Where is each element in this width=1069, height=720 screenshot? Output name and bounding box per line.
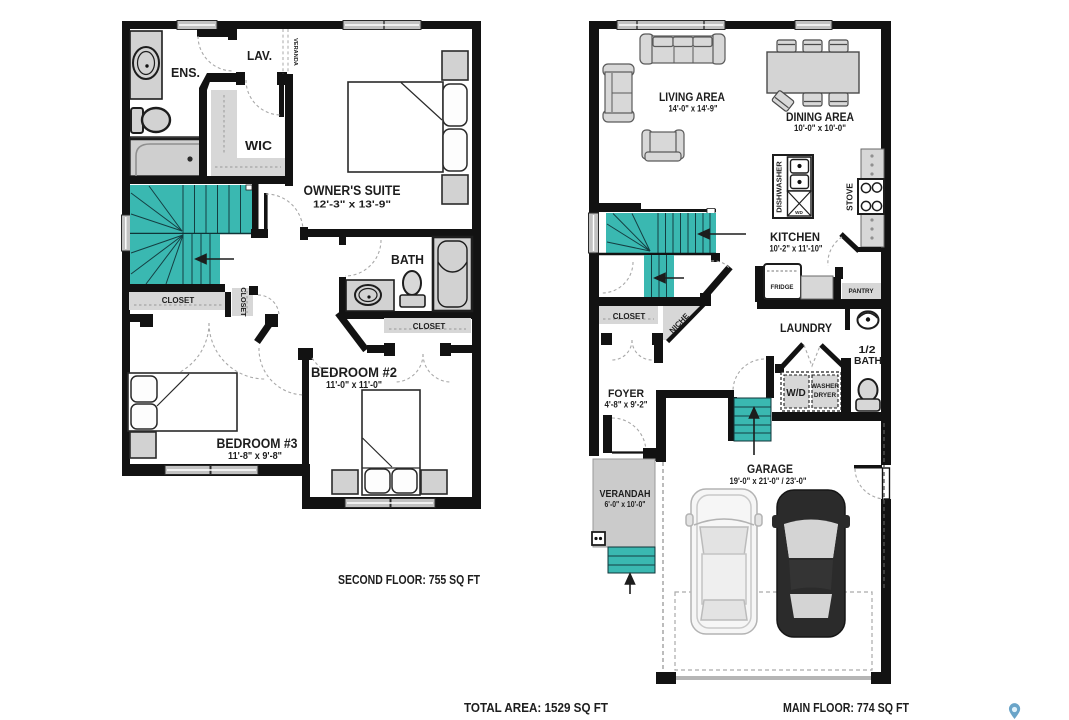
svg-text:W/D: W/D [786, 388, 805, 399]
svg-text:OWNER'S SUITE: OWNER'S SUITE [304, 183, 401, 198]
svg-text:GARAGE: GARAGE [747, 462, 793, 476]
svg-text:CLOSET: CLOSET [613, 312, 646, 321]
svg-text:DISHWASHER: DISHWASHER [775, 161, 784, 213]
svg-text:12'-3" x 13'-9": 12'-3" x 13'-9" [313, 200, 391, 211]
svg-text:BATH: BATH [854, 356, 882, 367]
svg-text:BEDROOM #2: BEDROOM #2 [311, 365, 397, 380]
svg-text:DRYER: DRYER [814, 392, 837, 399]
svg-text:11'-8" x 9'-8": 11'-8" x 9'-8" [228, 451, 282, 462]
svg-text:6'-0" x 10'-0": 6'-0" x 10'-0" [605, 500, 646, 509]
svg-text:CLOSET: CLOSET [162, 296, 195, 305]
svg-text:4'-8" x 9'-2": 4'-8" x 9'-2" [605, 400, 648, 410]
svg-text:ENS.: ENS. [171, 65, 200, 80]
svg-text:BATH: BATH [391, 253, 424, 267]
svg-text:19'-0" x 21'-0" / 23'-0": 19'-0" x 21'-0" / 23'-0" [730, 476, 807, 487]
svg-text:CLOSET: CLOSET [239, 287, 248, 317]
svg-text:10'-2" x 11'-10": 10'-2" x 11'-10" [770, 244, 823, 255]
svg-text:VERANDAH: VERANDAH [600, 489, 651, 500]
svg-text:VERANDA: VERANDA [292, 38, 298, 66]
svg-text:KITCHEN: KITCHEN [770, 230, 820, 244]
svg-text:LAUNDRY: LAUNDRY [780, 323, 832, 335]
svg-text:TOTAL AREA: 1529 SQ FT: TOTAL AREA: 1529 SQ FT [464, 700, 608, 715]
svg-text:CLOSET: CLOSET [413, 322, 446, 331]
svg-text:14'-0" x 14'-9": 14'-0" x 14'-9" [669, 104, 718, 115]
svg-text:LAV.: LAV. [247, 48, 272, 63]
svg-text:BEDROOM #3: BEDROOM #3 [217, 436, 298, 451]
svg-text:WD: WD [795, 210, 803, 215]
svg-text:MAIN FLOOR: 774 SQ FT: MAIN FLOOR: 774 SQ FT [783, 700, 909, 715]
svg-text:1/2: 1/2 [859, 345, 877, 356]
svg-text:LIVING AREA: LIVING AREA [659, 92, 725, 104]
svg-text:FRIDGE: FRIDGE [771, 284, 794, 291]
svg-text:STOVE: STOVE [846, 183, 855, 211]
svg-text:FOYER: FOYER [608, 388, 644, 400]
svg-text:PANTRY: PANTRY [849, 288, 875, 295]
svg-text:10'-0" x 10'-0": 10'-0" x 10'-0" [794, 123, 846, 134]
svg-text:11'-0" x 11'-0": 11'-0" x 11'-0" [326, 380, 382, 391]
svg-text:WIC: WIC [245, 138, 273, 153]
svg-text:SECOND FLOOR: 755 SQ FT: SECOND FLOOR: 755 SQ FT [338, 572, 480, 587]
svg-text:WASHER: WASHER [811, 383, 839, 390]
